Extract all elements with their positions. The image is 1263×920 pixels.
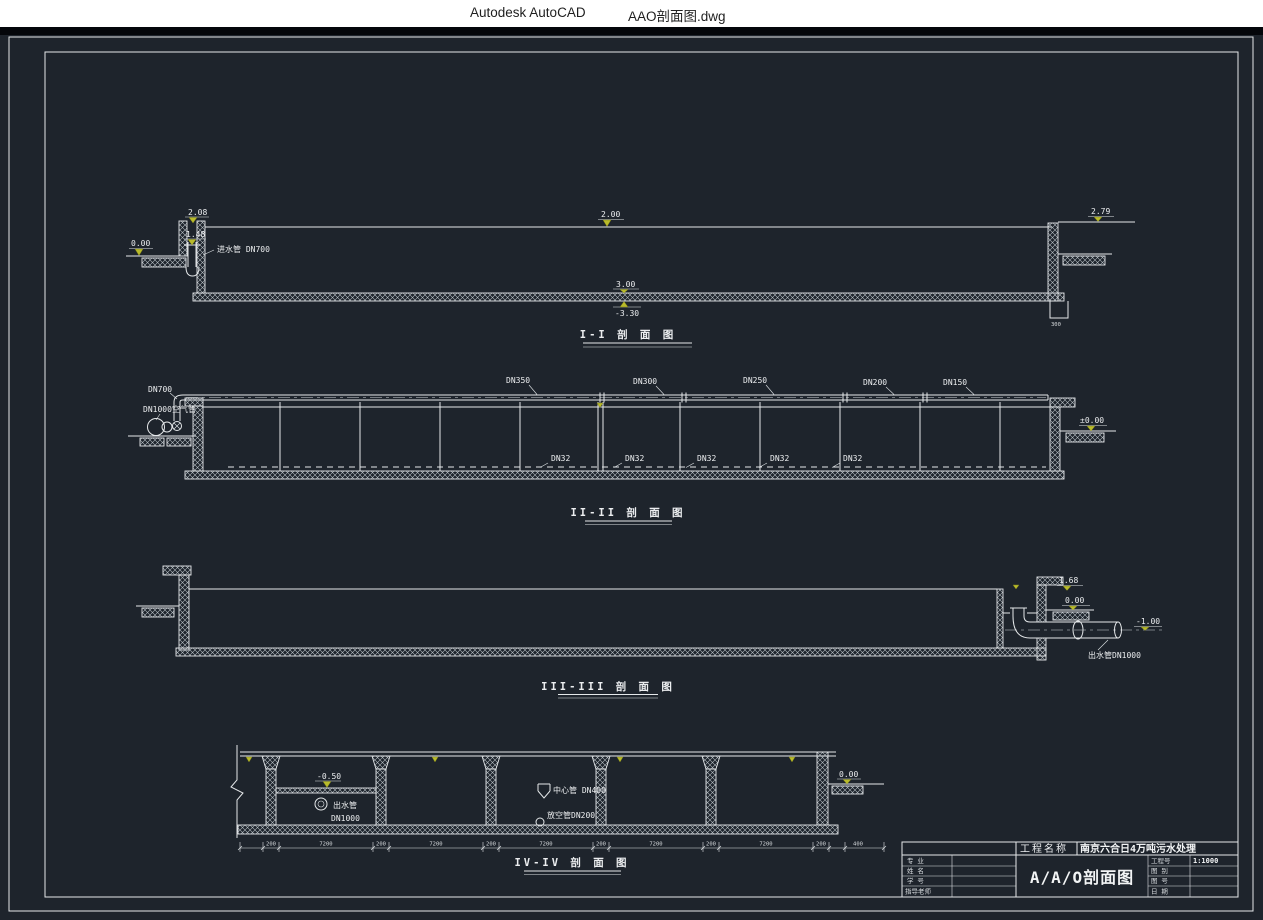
water-level-icon [432, 757, 438, 762]
elevation-label: ±0.00 [1080, 416, 1104, 425]
titleblock-row-label: 姓 名 [907, 866, 924, 875]
pit-dimension: 300 [1051, 322, 1061, 328]
document-title: AAO剖面图.dwg [628, 5, 726, 25]
section-2-2: DN700 DN1000 空气管 DN32 DN32 DN32 DN32 DN3… [128, 376, 1116, 525]
right-wall [1050, 407, 1060, 471]
column-capital [592, 756, 610, 769]
titleblock-row-label: 学 号 [907, 876, 924, 885]
diffuser-pipe-label: DN32 [625, 454, 644, 463]
elevation-label: 1.68 [1059, 576, 1078, 585]
elevation-marker-icon [843, 780, 851, 785]
outlet-pipe-section [315, 798, 327, 810]
elevation-label: 2.08 [188, 208, 207, 217]
dimension-text: 7200 [759, 842, 772, 848]
column [486, 769, 496, 825]
column-capital [262, 756, 280, 769]
left-wall [179, 575, 189, 650]
dimension-text: 7200 [539, 842, 552, 848]
right-wall [1037, 585, 1046, 622]
titleblock-row-label: 图 号 [1151, 877, 1168, 885]
section-title: I-I 剖 面 图 [580, 328, 676, 341]
water-level-icon [617, 757, 623, 762]
titleblock-row-label: 图 别 [1151, 866, 1168, 875]
dimension-text: 7200 [649, 842, 662, 848]
elevation-marker-icon [620, 290, 628, 294]
floor-slab [185, 471, 1064, 479]
titleblock-row-label: 日 期 [1151, 888, 1168, 896]
column-capital [702, 756, 720, 769]
section-4-4: -0.50 出水管 DN1000 中心管 DN400 放空管DN200 0.00 [231, 745, 886, 875]
dimension-text: 200 [816, 842, 826, 848]
elevation-label: 1.48 [186, 230, 205, 239]
elevation-label: 2.00 [601, 210, 620, 219]
window-titlebar[interactable]: Autodesk AutoCAD AAO剖面图.dwg [0, 0, 1263, 27]
center-pipe-icon [538, 784, 550, 798]
titleblock-row-label: 专 业 [907, 856, 924, 865]
elevation-marker-icon [1069, 606, 1077, 610]
dimension-text: 7200 [429, 842, 442, 848]
inlet-pipe-label: 进水管 DN700 [217, 244, 270, 254]
drawing-title: A/A/O剖面图 [1030, 868, 1134, 887]
section-title: II-II 剖 面 图 [570, 506, 685, 519]
center-pipe-label: 中心管 DN400 [553, 785, 606, 795]
air-pipe-size-label: DN150 [943, 378, 967, 387]
column [596, 769, 606, 825]
ground-hatch [142, 258, 186, 267]
ground-hatch [140, 438, 164, 446]
dimension-text: 200 [596, 842, 606, 848]
diffuser-pipe-label: DN32 [697, 454, 716, 463]
outlet-pipe-label: DN1000 [331, 814, 360, 823]
floor-slab [176, 648, 1046, 656]
weir-wall [997, 589, 1003, 648]
column [706, 769, 716, 825]
elevation-marker-icon [135, 249, 143, 256]
dimension-text: 400 [853, 842, 863, 848]
diffuser-pipe-label: DN32 [770, 454, 789, 463]
elevation-marker-icon [323, 782, 331, 788]
pipe-label: DN1000 [143, 405, 172, 414]
ground-hatch [832, 786, 863, 794]
elevation-marker-icon [1063, 586, 1071, 591]
air-pipe-size-label: DN350 [506, 376, 530, 385]
floor-slab [193, 293, 1064, 301]
water-level-icon [1013, 585, 1019, 589]
elevation-label: 0.00 [1065, 596, 1084, 605]
outlet-pipe-label: 出水管 [333, 800, 357, 810]
pipe-label: DN700 [148, 385, 172, 394]
elevation-label: 2.79 [1091, 207, 1110, 216]
ground-hatch [1066, 433, 1104, 442]
wall-top-block [1050, 398, 1075, 407]
water-level-icon [246, 757, 252, 762]
section-title: III-III 剖 面 图 [541, 680, 675, 693]
column-capital [482, 756, 500, 769]
wall-top-block [185, 398, 203, 406]
titleblock-row-value: 1:1000 [1193, 857, 1218, 865]
elevation-label: -0.50 [317, 772, 341, 781]
section-1-1: 300 2.08 1.48 0.00 进水管 DN700 2.00 2.79 3… [126, 207, 1135, 347]
dimension-text: 200 [706, 842, 716, 848]
elevation-marker-icon [620, 302, 628, 308]
project-name-value: 南京六合日4万吨污水处理 [1080, 842, 1196, 855]
sump-pit [1050, 301, 1068, 318]
break-line [231, 745, 243, 838]
diffuser-pipe-label: DN32 [843, 454, 862, 463]
elevation-marker-icon [188, 240, 196, 246]
dimension-text: 7200 [319, 842, 332, 848]
elevation-marker-icon [603, 220, 611, 227]
dimension-text: 200 [266, 842, 276, 848]
ground-hatch [1063, 256, 1105, 265]
right-wall [1048, 223, 1058, 301]
blower-icon [162, 422, 172, 432]
trough-slab [276, 788, 376, 793]
column-capital [372, 756, 390, 769]
wall-top-block [163, 566, 191, 575]
outlet-elbow [1013, 616, 1030, 638]
column [266, 769, 276, 825]
drawing-overlay[interactable]: 300 2.08 1.48 0.00 进水管 DN700 2.00 2.79 3… [0, 0, 1263, 920]
floor-slab [238, 825, 838, 834]
titleblock-row-label: 指导老师 [905, 887, 932, 896]
dimension-text: 200 [486, 842, 496, 848]
air-pipe-size-label: DN200 [863, 378, 887, 387]
left-wall [193, 406, 203, 471]
title-block: 工程名称 南京六合日4万吨污水处理 A/A/O剖面图 专 业 姓 名 学 号 指… [902, 842, 1238, 897]
right-wall [817, 752, 828, 825]
ground-hatch [167, 438, 191, 446]
outlet-pipe-label: 出水管DN1000 [1088, 650, 1141, 660]
elevation-label: 3.00 [616, 280, 635, 289]
project-name-label: 工程名称 [1020, 842, 1068, 855]
section-3-3: 1.68 0.00 -1.00 出水管DN1000 III-III 剖 面 图 [136, 566, 1162, 698]
elevation-label: 0.00 [131, 239, 150, 248]
elevation-marker-icon [189, 218, 197, 224]
elevation-marker-icon [1087, 426, 1095, 431]
ground-hatch [1053, 612, 1089, 620]
elevation-label: 0.00 [839, 770, 858, 779]
section-title: IV-IV 剖 面 图 [514, 856, 629, 869]
ground-hatch [142, 608, 174, 617]
drain-pipe-label: 放空管DN200 [547, 810, 595, 820]
elevation-label: -1.00 [1136, 617, 1160, 626]
titleblock-row-label: 工程号 [1151, 856, 1171, 865]
water-level-icon [789, 757, 795, 762]
column [376, 769, 386, 825]
air-pipe-size-label: DN300 [633, 377, 657, 386]
diffuser-pipe-label: DN32 [551, 454, 570, 463]
elevation-label: -3.30 [615, 309, 639, 318]
dimension-text: 200 [376, 842, 386, 848]
app-title: Autodesk AutoCAD [470, 5, 586, 20]
elevation-marker-icon [1094, 217, 1102, 222]
air-pipe-size-label: DN250 [743, 376, 767, 385]
